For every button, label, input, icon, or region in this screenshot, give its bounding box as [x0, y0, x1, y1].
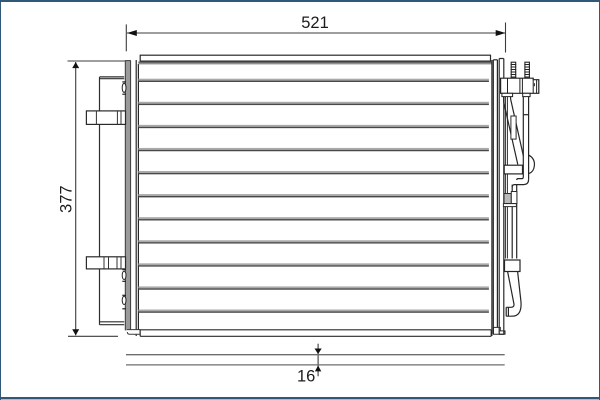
svg-text:521: 521	[301, 14, 329, 32]
svg-text:377: 377	[58, 185, 76, 213]
svg-text:16: 16	[297, 367, 315, 385]
